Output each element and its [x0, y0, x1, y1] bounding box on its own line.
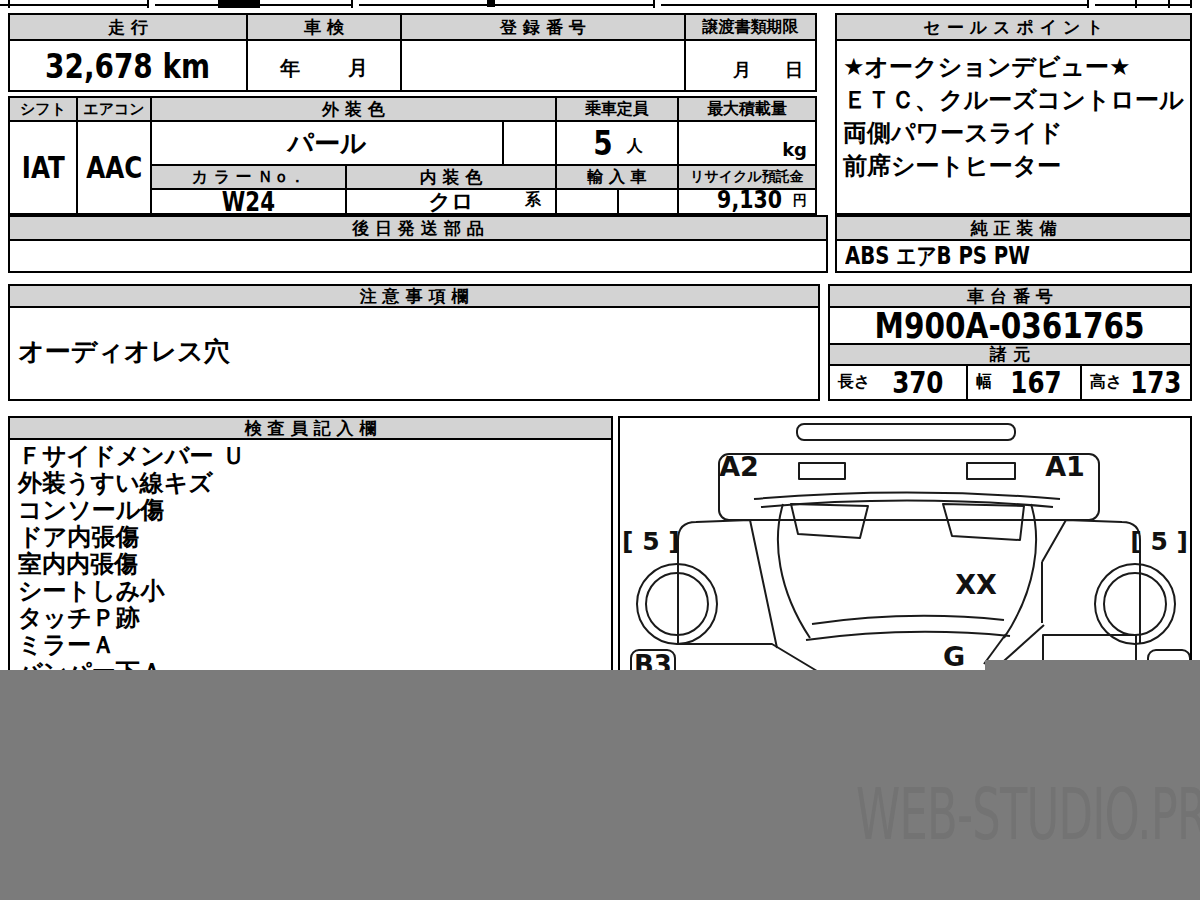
shaken-label: 車 検: [304, 16, 344, 39]
grille-arc: [806, 632, 1010, 640]
specs-header: 諸 元: [828, 343, 1192, 366]
oem-equipment-header: 純 正 装 備: [835, 215, 1192, 241]
mileage-header: 走 行: [8, 13, 248, 41]
capacity-unit: 人: [627, 136, 643, 160]
sunroof-right-shape: [967, 463, 1015, 479]
aircon-label: エアコン: [83, 100, 144, 119]
sales-point-line: ＥＴＣ、クルーズコントロール: [843, 84, 1184, 117]
inspector-body: Ｆサイドメンバー Ｕ 外装うすい線キズ コンソール傷 ドア内張傷 室内内張傷 シ…: [8, 438, 613, 690]
headlight-right-outer: [1095, 564, 1175, 644]
chassis-value: M900A-0361765: [875, 305, 1145, 346]
recycle-deposit-value-cell: 9,130 円: [677, 188, 817, 215]
wiper-right: [943, 504, 1024, 540]
hood-right-edge: [1004, 504, 1036, 638]
recycle-deposit-label: リサイクル預託金: [690, 168, 804, 186]
max-load-unit: kg: [782, 139, 807, 160]
inspector-item: タッチＰ跡: [18, 605, 611, 632]
spec-length-value: 370: [879, 365, 957, 400]
shaken-month-unit: 月: [348, 55, 368, 82]
inspector-item: Ｆサイドメンバー Ｕ: [18, 443, 611, 470]
import-car-cell-right: [617, 188, 679, 215]
diagram-label-left5: [ 5 ]: [622, 527, 680, 556]
damage-diagram-box: A2 A1 [ 5 ] [ 5 ] XX G B3: [618, 416, 1192, 690]
diagram-label-g: G: [943, 641, 965, 672]
spec-width-value: 167: [1000, 365, 1072, 400]
transfer-deadline-value-cell: 月 日: [684, 39, 817, 92]
diagram-label-a2: A2: [719, 451, 759, 482]
shaken-year-unit: 年: [280, 55, 300, 82]
auction-sheet: 走 行 32,678 km 車 検 年 月 登 録 番 号 譲渡書類期限 月 日…: [0, 0, 1200, 900]
capacity-header: 乗車定員: [555, 96, 679, 122]
recycle-deposit-value: 9,130: [717, 187, 782, 212]
spec-width-label: 幅: [968, 372, 992, 393]
max-load-header: 最大積載量: [677, 96, 817, 122]
roof-bar-shape: [797, 424, 1015, 440]
watermark-text: WEB-STUDIO.PRO: [856, 773, 1200, 856]
diagram-label-right5: [ 5 ]: [1130, 527, 1188, 556]
color-no-label: カ ラ ー Ｎｏ．: [192, 167, 305, 188]
color-no-value-cell: W24: [150, 188, 347, 215]
later-parts-label: 後 日 発 送 部 品: [352, 217, 484, 240]
notes-header: 注 意 事 項 欄: [8, 284, 820, 308]
sales-points-body: ★オークションデビュー★ ＥＴＣ、クルーズコントロール 両側パワースライド 前席…: [835, 39, 1192, 215]
spec-height-value: 173: [1128, 365, 1183, 400]
inspector-header: 検 査 員 記 入 欄: [8, 416, 613, 440]
inspector-label: 検 査 員 記 入 欄: [245, 417, 377, 440]
exterior-color-value: パール: [287, 126, 366, 161]
inspector-item: 室内内張傷: [18, 551, 611, 578]
capacity-value-cell: 5 人: [555, 120, 679, 166]
oem-equipment-value: ABS エアB PS PW: [845, 240, 1030, 272]
later-parts-header: 後 日 発 送 部 品: [8, 215, 828, 241]
recycle-deposit-unit: 円: [793, 192, 807, 212]
shaken-header: 車 検: [246, 13, 402, 41]
cowl-arc: [754, 493, 1060, 500]
shaken-value-cell: 年 月: [246, 39, 402, 92]
shift-header: シフト: [8, 96, 78, 122]
later-parts-value-cell: [8, 239, 828, 273]
headlight-right-inner: [1104, 573, 1166, 635]
mileage-value-cell: 32,678 km: [8, 39, 248, 92]
registration-value-cell: [400, 39, 686, 92]
color-no-value: W24: [222, 187, 275, 217]
capacity-value: 5: [593, 126, 612, 160]
spec-length-cell: 長さ 370: [828, 364, 968, 401]
inspector-item: 外装うすい線キズ: [18, 470, 611, 497]
cabin-shape: [719, 454, 1099, 520]
sunroof-left-shape: [799, 463, 845, 479]
diagram-label-xx: XX: [955, 569, 997, 600]
spec-height-cell: 高さ 173: [1080, 364, 1192, 401]
max-load-value-cell: kg: [677, 120, 817, 166]
fender-right: [1042, 520, 1140, 644]
interior-color-label: 内 装 色: [420, 166, 483, 189]
capacity-label: 乗車定員: [585, 99, 649, 120]
notes-value: オーディオレス穴: [18, 336, 230, 366]
mileage-label: 走 行: [108, 16, 148, 39]
car-front-diagram: A2 A1 [ 5 ] [ 5 ] XX G B3: [620, 418, 1190, 688]
hood-left-edge: [778, 504, 810, 638]
sales-points-label: セ ー ル ス ポ イ ン ト: [923, 16, 1103, 39]
mileage-value: 32,678 km: [46, 46, 211, 86]
sales-point-line: 前席シートヒーター: [843, 150, 1184, 183]
sales-point-line: ★オークションデビュー★: [843, 51, 1184, 84]
import-car-cell-left: [555, 188, 619, 215]
spec-length-label: 長さ: [830, 372, 870, 393]
import-car-label: 輸 入 車: [587, 167, 646, 188]
spec-height-label: 高さ: [1082, 372, 1122, 393]
gray-band-left: [0, 670, 986, 900]
oem-equipment-value-cell: ABS エアB PS PW: [835, 239, 1192, 273]
registration-label: 登 録 番 号: [500, 16, 586, 39]
oem-equipment-label: 純 正 装 備: [971, 217, 1057, 240]
inspector-item: コンソール傷: [18, 497, 611, 524]
exterior-color-header: 外 装 色: [150, 96, 557, 122]
transfer-deadline-label: 譲渡書類期限: [703, 17, 799, 38]
import-car-header: 輸 入 車: [555, 164, 679, 190]
max-load-label: 最大積載量: [707, 99, 787, 120]
aircon-value: AAC: [86, 150, 142, 185]
sales-point-line: 両側パワースライド: [843, 117, 1184, 150]
transfer-deadline-header: 譲渡書類期限: [684, 13, 817, 41]
inspector-item: ドア内張傷: [18, 524, 611, 551]
spec-width-cell: 幅 167: [966, 364, 1082, 401]
exterior-color-extra-cell: [502, 120, 557, 166]
notes-label: 注 意 事 項 欄: [360, 285, 469, 308]
transfer-day-unit: 日: [785, 58, 803, 82]
exterior-color-value-cell: パール: [150, 120, 504, 166]
aircon-value-cell: AAC: [76, 120, 152, 215]
shift-label: シフト: [20, 100, 66, 119]
shift-value-cell: IAT: [8, 120, 78, 215]
shift-value: IAT: [21, 150, 64, 185]
grille-arc: [812, 616, 1004, 624]
chassis-value-cell: M900A-0361765: [828, 306, 1192, 345]
fender-left: [678, 520, 777, 648]
interior-color-value: クロ: [428, 187, 473, 217]
bumper-right-rect: [1043, 635, 1136, 661]
exterior-color-label: 外 装 色: [322, 98, 385, 121]
inspector-item: シートしみ小: [18, 578, 611, 605]
notes-body: オーディオレス穴: [8, 306, 820, 401]
interior-color-value-cell: クロ 系: [345, 188, 557, 215]
sales-points-header: セ ー ル ス ポ イ ン ト: [835, 13, 1192, 41]
aircon-header: エアコン: [76, 96, 152, 122]
transfer-month-unit: 月: [733, 58, 751, 82]
registration-header: 登 録 番 号: [400, 13, 686, 41]
diagram-label-a1: A1: [1045, 451, 1085, 482]
inspector-item: ミラーＡ: [18, 632, 611, 659]
specs-label: 諸 元: [990, 343, 1030, 366]
interior-color-suffix: 系: [525, 190, 541, 211]
